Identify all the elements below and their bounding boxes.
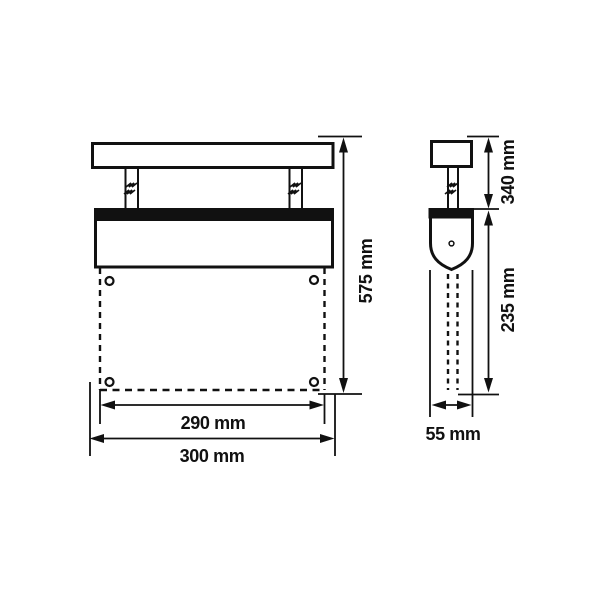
dimension-label-panel-height: 235 mm (498, 268, 518, 333)
arrow-down-icon (339, 378, 348, 393)
arrow-left-icon (101, 401, 116, 410)
dimension-drawing-canvas: 575 mm 290 mm 300 mm (0, 0, 600, 600)
arrow-down-icon (484, 194, 493, 209)
mounting-hole (310, 276, 318, 284)
mounting-hole (106, 378, 114, 386)
front-view (93, 144, 335, 391)
dimension-label-overall-height: 575 mm (356, 239, 376, 304)
arrow-left-icon (90, 434, 105, 443)
side-ceiling-plate (432, 142, 472, 167)
arrow-down-icon (484, 378, 493, 393)
mounting-hole (310, 378, 318, 386)
side-view (429, 142, 475, 418)
dimension-label-depth: 55 mm (425, 424, 480, 444)
arrow-up-icon (339, 138, 348, 153)
arrow-right-icon (310, 401, 325, 410)
front-ceiling-plate (93, 144, 334, 168)
arrow-up-icon (484, 211, 493, 226)
arrow-left-icon (432, 401, 447, 410)
dimension-drawing: 575 mm 290 mm 300 mm (0, 0, 600, 600)
arrow-up-icon (484, 138, 493, 153)
dimension-label-housing-width: 300 mm (180, 446, 245, 466)
side-housing-body (431, 210, 473, 270)
side-center-hole (449, 241, 454, 246)
break-mark-icon (445, 183, 458, 194)
front-housing-top-bar (94, 208, 334, 219)
arrow-right-icon (457, 401, 472, 410)
front-housing-body (96, 220, 333, 268)
dimension-label-panel-width: 290 mm (181, 413, 246, 433)
arrow-right-icon (320, 434, 335, 443)
dimension-label-suspension-height: 340 mm (498, 140, 518, 205)
mounting-hole (106, 277, 114, 285)
